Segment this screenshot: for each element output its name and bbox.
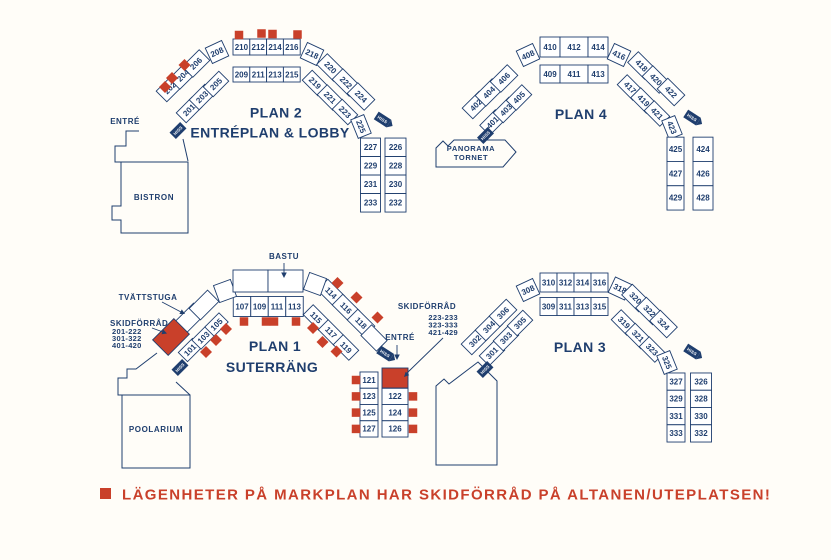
unit-cell: 230 — [385, 175, 406, 194]
unit-cell: 311 — [557, 298, 574, 316]
unit-cell: 329 — [667, 390, 685, 407]
poolarium-steps — [118, 353, 157, 395]
bastu-label: BASTU — [269, 252, 299, 261]
unit-cell: 113 — [286, 297, 304, 317]
unit-cell: 325 — [657, 351, 677, 375]
unit-cell: 314 — [574, 273, 591, 292]
markplan-square — [270, 317, 279, 326]
floorplan-page: 2022042062082102122142162182202222242012… — [0, 0, 831, 555]
unit-cell: 215 — [283, 67, 300, 82]
unit-number: 333 — [669, 429, 683, 438]
unit-cell: 124 — [382, 404, 408, 420]
unit-number: 213 — [268, 70, 282, 79]
markplan-square — [293, 30, 302, 39]
unit-number: 326 — [694, 377, 708, 386]
unit-number: 210 — [235, 43, 249, 52]
unit-number: 311 — [559, 302, 572, 311]
skidforrad-right-range-3: 421-429 — [428, 328, 458, 337]
unit-number: 312 — [559, 278, 573, 287]
unit-number: 412 — [567, 43, 581, 52]
unit-number: 232 — [389, 199, 403, 208]
unit-cell: 228 — [385, 157, 406, 176]
unit-cell: 229 — [361, 157, 381, 176]
unit-cell: 109 — [251, 297, 269, 317]
markplan-square — [409, 425, 418, 434]
markplan-square — [352, 376, 361, 385]
unit-cell: 111 — [268, 297, 286, 317]
unit-cell: 332 — [691, 425, 712, 442]
markplan-square — [409, 392, 418, 401]
unit-number: 233 — [364, 199, 378, 208]
unit-number: 216 — [285, 43, 299, 52]
plan1-entre-arrowhead — [394, 355, 400, 361]
unit-number: 331 — [669, 412, 683, 421]
plan2-entre-label: ENTRÉ — [110, 117, 140, 126]
plan4-title: PLAN 4 — [555, 106, 607, 122]
unit-number: 127 — [362, 425, 376, 434]
hiss-marker: HISS — [170, 122, 187, 139]
unit-cell: 414 — [588, 37, 608, 57]
unit-cell: 409 — [540, 65, 560, 83]
unit-cell: 331 — [667, 407, 685, 424]
plan3-title: PLAN 3 — [554, 339, 606, 355]
markplan-square — [371, 311, 383, 323]
unit-cell: 212 — [250, 39, 267, 55]
unit-cells-layer: 2022042062082102122142162182202222242012… — [153, 29, 713, 442]
unit-number: 125 — [362, 408, 376, 417]
unit-cell: 227 — [361, 138, 381, 157]
unit-cell: 126 — [382, 421, 408, 437]
plan1-subtitle: SUTERRÄNG — [226, 359, 318, 375]
unit-cell: 127 — [360, 421, 378, 437]
unit-cell: 309 — [540, 298, 557, 316]
unit-cell: 121 — [360, 372, 378, 388]
unit-number: 328 — [694, 395, 708, 404]
unit-cell: 123 — [360, 388, 378, 404]
unit-number: 310 — [542, 278, 556, 287]
unit-cell: 423 — [662, 116, 682, 140]
markplan-square — [352, 392, 361, 401]
unit-cell: 214 — [267, 39, 284, 55]
unit-number: 123 — [362, 392, 376, 401]
hiss-marker: HISS — [374, 112, 395, 130]
tvattstuga-label: TVÄTTSTUGA — [119, 293, 178, 302]
unit-number: 229 — [364, 162, 378, 171]
unit-cell: 232 — [385, 194, 406, 213]
unit-cell: 333 — [667, 425, 685, 442]
unit-cell: 233 — [361, 194, 381, 213]
markplan-square — [268, 30, 277, 39]
unit-number: 425 — [669, 145, 683, 154]
facility-cell-shape — [233, 270, 268, 292]
unit-number: 107 — [235, 302, 249, 311]
unit-cell: 424 — [693, 137, 713, 161]
skidforrad-right-arrow-line — [407, 338, 443, 373]
plan2-title: PLAN 2 — [250, 105, 302, 121]
poolarium-connector — [176, 382, 190, 395]
unit-cell: 326 — [691, 373, 712, 390]
unit-cell: 425 — [667, 137, 684, 161]
markplan-square — [292, 317, 301, 326]
unit-cell: 428 — [693, 186, 713, 210]
unit-number: 410 — [543, 43, 557, 52]
plan2-cells: 2022042062082102122142162182202222242012… — [156, 29, 406, 212]
panorama-label-line1: PANORAMA — [447, 144, 495, 153]
skidforrad-left-range-3: 401-420 — [112, 341, 142, 350]
plan2-subtitle: ENTRÉPLAN & LOBBY — [190, 125, 350, 141]
markplan-square — [352, 408, 361, 417]
unit-number: 427 — [669, 169, 683, 178]
unit-number: 214 — [268, 43, 282, 52]
unit-number: 126 — [388, 425, 402, 434]
unit-number: 209 — [235, 70, 249, 79]
unit-number: 315 — [593, 302, 607, 311]
unit-number: 226 — [389, 143, 403, 152]
skidforrad-cell — [382, 368, 408, 388]
unit-cell: 216 — [283, 39, 300, 55]
legend-red-square — [100, 488, 111, 499]
unit-cell: 122 — [382, 388, 408, 404]
unit-number: 309 — [542, 302, 556, 311]
unit-number: 111 — [271, 302, 284, 311]
skidforrad-left-arrow-line — [152, 328, 163, 332]
unit-cell: 327 — [667, 373, 685, 390]
facility-cell — [233, 270, 268, 292]
unit-cell: 416 — [607, 43, 630, 66]
unit-number: 429 — [669, 194, 683, 203]
unit-cell: 226 — [385, 138, 406, 157]
unit-cell: 330 — [691, 407, 712, 424]
plan2-arc-connector — [183, 139, 188, 161]
unit-cell: 209 — [233, 67, 250, 82]
unit-cell: 426 — [693, 161, 713, 185]
unit-number: 414 — [591, 43, 605, 52]
unit-number: 330 — [694, 412, 708, 421]
unit-cell: 412 — [560, 37, 588, 57]
markplan-square — [350, 291, 362, 303]
unit-cell: 308 — [516, 278, 539, 301]
unit-cell: 313 — [574, 298, 591, 316]
unit-cell: 410 — [540, 37, 560, 57]
markplan-square — [235, 31, 244, 40]
unit-number: 329 — [669, 395, 683, 404]
unit-number: 124 — [388, 408, 402, 417]
unit-number: 227 — [364, 143, 378, 152]
unit-cell: 210 — [233, 39, 250, 55]
unit-cell: 316 — [591, 273, 608, 292]
unit-number: 332 — [694, 429, 708, 438]
unit-number: 424 — [696, 145, 710, 154]
plan3-tower-box — [436, 362, 497, 465]
unit-number: 228 — [389, 162, 403, 171]
unit-number: 413 — [591, 70, 605, 79]
unit-number: 314 — [576, 278, 590, 287]
unit-number: 109 — [253, 302, 267, 311]
unit-cell: 429 — [667, 186, 684, 210]
unit-cell: 328 — [691, 390, 712, 407]
unit-number: 211 — [252, 70, 265, 79]
markplan-square — [409, 408, 418, 417]
plan3-cells: 3023043063083103123143163183203223243013… — [461, 273, 711, 442]
unit-cell: 312 — [557, 273, 574, 292]
skidforrad-right-title: SKIDFÖRRÅD — [398, 302, 456, 311]
unit-number: 327 — [669, 377, 683, 386]
poolarium-label: POOLARIUM — [129, 425, 183, 434]
plan2-entrance-steps — [115, 131, 139, 162]
unit-number: 113 — [288, 302, 301, 311]
unit-number: 411 — [568, 70, 581, 79]
unit-cell: 310 — [540, 273, 557, 292]
plan4-cells: 4024044064084104124144164184204224014034… — [462, 37, 713, 210]
tvattstuga-arrow-line — [162, 302, 181, 312]
unit-cell: 408 — [516, 43, 539, 66]
unit-number: 212 — [252, 43, 266, 52]
unit-number: 316 — [593, 278, 607, 287]
panorama-label-line2: TORNET — [454, 153, 488, 162]
unit-cell: 107 — [233, 297, 251, 317]
unit-number: 428 — [696, 194, 710, 203]
unit-number: 121 — [362, 376, 376, 385]
unit-cell: 427 — [667, 161, 684, 185]
unit-number: 426 — [696, 169, 710, 178]
markplan-square — [352, 425, 361, 434]
unit-number: 230 — [389, 180, 403, 189]
plan1-title: PLAN 1 — [249, 338, 301, 354]
unit-cell: 225 — [351, 115, 371, 139]
unit-cell: 125 — [360, 404, 378, 420]
unit-cell: 211 — [250, 67, 267, 82]
unit-number: 122 — [388, 392, 402, 401]
hiss-marker: HISS — [683, 110, 704, 128]
skidforrad-cell-shape — [382, 368, 408, 388]
bistron-label: BISTRON — [134, 193, 174, 202]
unit-cell: 231 — [361, 175, 381, 194]
floorplan-diagram: 2022042062082102122142162182202222242012… — [0, 0, 831, 555]
unit-cell: 315 — [591, 298, 608, 316]
unit-number: 231 — [364, 180, 378, 189]
plan1-entre-label: ENTRÉ — [385, 333, 415, 342]
unit-cell: 413 — [588, 65, 608, 83]
unit-number: 215 — [285, 70, 299, 79]
hiss-marker: HISS — [683, 344, 704, 362]
unit-cell: 213 — [267, 67, 284, 82]
unit-cell: 411 — [560, 65, 588, 83]
unit-number: 409 — [543, 70, 557, 79]
markplan-square — [240, 317, 249, 326]
unit-number: 313 — [576, 302, 590, 311]
hiss-marker: HISS — [172, 359, 189, 376]
legend-text: LÄGENHETER PÅ MARKPLAN HAR SKIDFÖRRÅD PÅ… — [122, 487, 771, 504]
markplan-square — [257, 29, 266, 38]
markplan-square — [262, 317, 271, 326]
